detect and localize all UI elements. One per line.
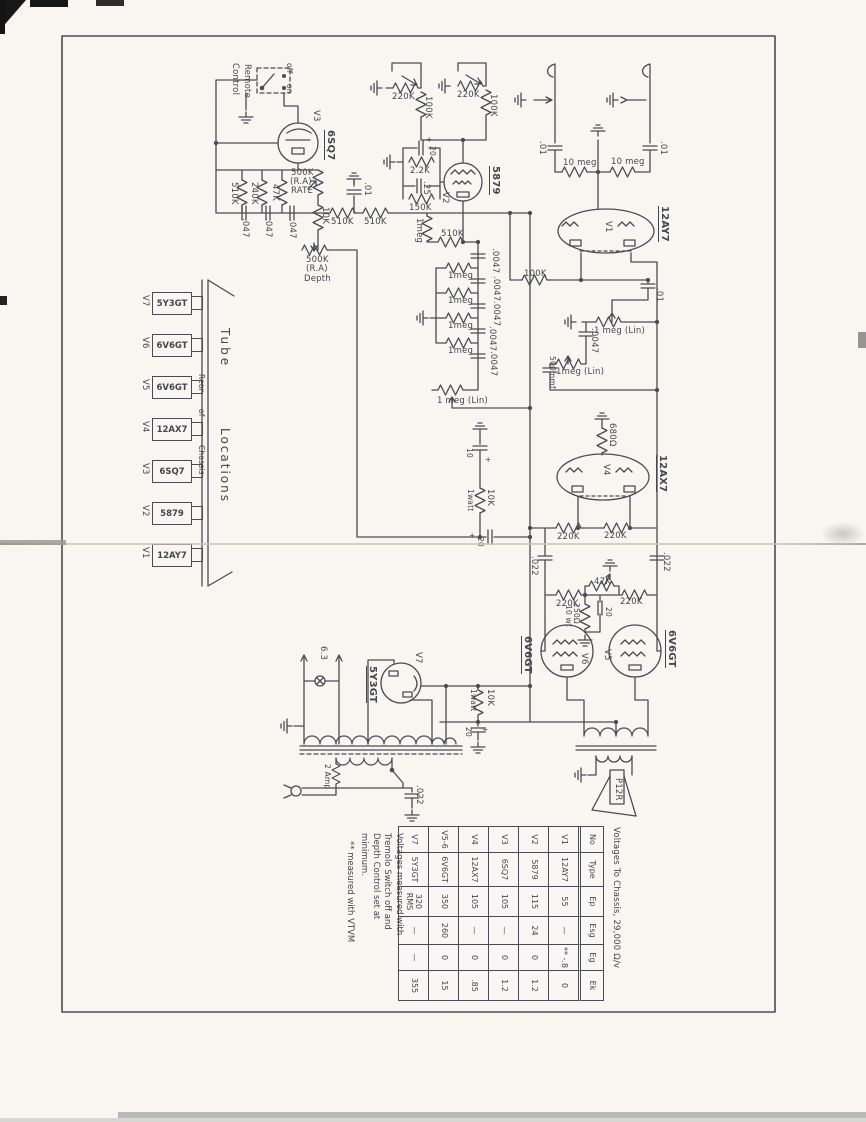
label-filt-plus1: + <box>485 455 491 464</box>
label-v4-type: 12AX7 <box>656 455 668 492</box>
label-in2-100k: 100K <box>488 94 498 117</box>
label-osc-r2: 240K <box>249 182 259 205</box>
vt-cell: V2 <box>518 827 548 853</box>
label-v5: V5 <box>602 649 612 661</box>
label-ps-10k: 10K <box>485 689 495 706</box>
scan-crease-left <box>0 540 66 545</box>
b-plus-filter <box>473 212 532 545</box>
vt-cell: — <box>458 917 488 945</box>
label-v1: V1 <box>603 221 613 233</box>
vt-cell: 350 <box>428 887 458 917</box>
scan-artifact-top-dash1 <box>30 0 68 7</box>
label-osc-c3: .047 <box>287 219 297 239</box>
vt-cell: — <box>548 917 578 945</box>
vt-row-v4: V4 12AX7 105 — 0 .85 <box>458 827 488 1001</box>
label-switch-on: on <box>285 84 294 94</box>
label-lad-r4: 1meg <box>448 346 473 356</box>
chart-no-v6: V6 <box>140 337 150 349</box>
label-lad-r3: 1meg <box>448 321 473 331</box>
label-out-250: 250Ω <box>572 603 581 624</box>
chart-box-v5: 6V6GT <box>152 376 192 399</box>
phase-shift-ladder <box>417 242 532 410</box>
label-trem-c0047: .0047 <box>589 328 599 353</box>
note-line-2: Tremolo Switch off and <box>381 833 393 1033</box>
label-osc-r6: 510K <box>364 217 387 227</box>
label-depth-3: Depth <box>304 274 331 284</box>
vt-cell: 115 <box>518 887 548 917</box>
vt-cell: 0 <box>458 945 488 971</box>
label-v2-510k: 510K <box>441 229 464 239</box>
vt-cell: 55 <box>548 887 578 917</box>
label-fuse-2amp: 2 Amp <box>323 764 332 789</box>
label-v4-680: 680Ω <box>607 423 617 447</box>
voltage-table-title: Voltages To Chassis, 29,000 Ω/v <box>611 827 621 968</box>
scanned-schematic-page: Remote Control off on V3 6SQ7 510K 240K … <box>0 0 866 1122</box>
chart-no-v2: V2 <box>140 505 150 517</box>
label-lad-c1: .0047 <box>490 248 500 273</box>
tube-v2-5879 <box>384 141 482 247</box>
label-v1-100k: 100K <box>524 269 547 279</box>
chart-no-v4: V4 <box>140 421 150 433</box>
note-vtvm-text: measured with VTVM <box>345 852 355 942</box>
vt-cell: 260 <box>428 917 458 945</box>
chart-title-tube: Tube <box>220 328 230 368</box>
vt-cell: 12AY7 <box>548 853 578 887</box>
voltage-notes: Voltages measured with Tremolo Switch of… <box>344 833 405 1033</box>
voltage-table-header-row: No Type Ep Esg Eg Ek <box>578 827 603 1001</box>
vt-row-v56: V5-6 6V6GT 350 260 0 15 <box>428 827 458 1001</box>
label-j3-cap: .01 <box>537 141 547 155</box>
note-line-3: Depth Control set at <box>370 833 382 1033</box>
tremolo-oscillator-v3 <box>215 68 531 537</box>
vt-cell: 105 <box>458 887 488 917</box>
chart-box-v4: 12AX7 <box>152 418 192 441</box>
label-filt-10k: 10K <box>485 489 495 506</box>
chart-box-v6: 6V6GT <box>152 334 192 357</box>
label-rate-3: RATE <box>291 186 313 196</box>
vt-cell: 0 <box>428 945 458 971</box>
label-trem-pot1: 1 meg (Lin) <box>594 326 645 336</box>
vt-cell: 0 <box>488 945 518 971</box>
vt-h-eg: Eg <box>578 945 603 971</box>
label-heater-63: 6.3 <box>318 646 328 660</box>
scan-fold-crease <box>0 543 866 545</box>
label-v4-220k-b: 220K <box>604 531 627 541</box>
chart-no-v5: V5 <box>140 379 150 391</box>
label-v3: V3 <box>311 110 321 122</box>
label-remote-1: Remote <box>242 64 252 98</box>
label-osc-r5: 510K <box>331 217 354 227</box>
vt-row-v2: V2 5879 115 24 0 1.2 <box>518 827 548 1001</box>
label-osc-r1: 510K <box>229 182 239 205</box>
note-line-4: minimum. <box>358 833 370 1033</box>
scan-smudge-right <box>820 522 866 546</box>
vt-cell: 5879 <box>518 853 548 887</box>
label-osc-c2: .047 <box>263 218 273 238</box>
label-v7: V7 <box>413 652 423 664</box>
label-in2-220k: 220K <box>457 90 480 100</box>
label-v6-type: 6V6GT <box>521 636 533 674</box>
label-j4-cap: .01 <box>658 141 668 155</box>
chart-type-v5: 6V6GT <box>156 383 187 393</box>
label-in1-100k: 100K <box>423 96 433 119</box>
label-v4-220k-a: 220K <box>557 532 580 542</box>
label-ps-1watt: 1watt <box>469 689 478 711</box>
label-v2-c20: 20 <box>428 146 437 156</box>
vt-row-v1: V1 12AY7 55 — ** -.8 0 <box>548 827 578 1001</box>
label-lad-pot: 1 meg (Lin) <box>437 396 488 406</box>
voltage-table: No Type Ep Esg Eg Ek V1 12AY7 55 — ** -.… <box>398 826 604 1001</box>
label-v2: V2 <box>440 192 450 204</box>
label-v2-c25: .25 <box>421 181 431 195</box>
label-lad-r1: 1meg <box>448 271 473 281</box>
label-v4: V4 <box>601 464 611 476</box>
label-v2-2k2: 2.2K <box>410 166 430 176</box>
vt-cell: V3 <box>488 827 518 853</box>
vt-cell: V5-6 <box>428 827 458 853</box>
chart-type-v2: 5879 <box>160 509 184 519</box>
label-v1-type: 12AY7 <box>658 206 670 242</box>
chart-no-v1: V1 <box>140 547 150 559</box>
vt-cell: V4 <box>458 827 488 853</box>
label-v2-1meg: 1meg <box>414 218 424 243</box>
label-v5-type: 6V6GT <box>665 630 677 668</box>
label-v2-150k: 150K <box>409 203 432 213</box>
vt-cell: 6SQ7 <box>488 853 518 887</box>
vt-cell: 0 <box>518 945 548 971</box>
label-filt-c10: 10 <box>465 448 474 458</box>
label-lad-c5: .0047 <box>488 351 498 376</box>
label-out-c20: 20 <box>604 607 613 617</box>
label-ps-c022: .022 <box>414 785 424 805</box>
chart-type-v7: 5Y3GT <box>157 299 188 309</box>
chart-box-v7: 5Y3GT <box>152 292 192 315</box>
label-remote-2: Control <box>230 63 240 95</box>
chart-box-v2: 5879 <box>152 502 192 525</box>
label-osc-r4: 10K <box>320 207 330 224</box>
chart-type-v3: 6SQ7 <box>159 467 184 477</box>
note-vtvm-mark: ** <box>345 841 355 850</box>
chart-type-v1: 12AY7 <box>157 551 187 561</box>
vt-cell: V1 <box>548 827 578 853</box>
scan-artifact-right-mark <box>858 332 866 348</box>
label-10meg-a: 10 meg <box>563 158 597 168</box>
label-trem-c01: .01 <box>654 288 664 302</box>
label-lad-c4: .0047 <box>487 326 497 351</box>
label-lad-c3: .0047 <box>491 301 501 326</box>
chart-title-locations: Locations <box>220 428 230 503</box>
label-trem-500mmf: 500mmf <box>548 356 557 389</box>
label-osc-c1: .047 <box>240 218 250 238</box>
label-10meg-b: 10 meg <box>611 157 645 167</box>
vt-row-v3: V3 6SQ7 105 — 0 1.2 <box>488 827 518 1001</box>
vt-cell: ** -.8 <box>548 945 578 971</box>
vt-cell: 6V6GT <box>428 853 458 887</box>
label-filt-1watt: 1watt <box>466 489 475 511</box>
output-stage-6v6gt <box>440 625 661 816</box>
tube-v1-12ay7 <box>509 64 658 285</box>
label-depth-2: (R.A) <box>306 264 328 274</box>
tube-v4-12ax7 <box>529 413 665 651</box>
chart-box-v1: 12AY7 <box>152 544 192 567</box>
chart-box-v3: 6SQ7 <box>152 460 192 483</box>
label-v2-type: 5879 <box>489 166 501 195</box>
chart-no-v3: V3 <box>140 463 150 475</box>
vt-cell: 15 <box>428 971 458 1001</box>
chart-type-v6: 6V6GT <box>156 341 187 351</box>
vt-cell: 105 <box>488 887 518 917</box>
label-filt-plus2: + <box>469 531 475 540</box>
vt-cell: 24 <box>518 917 548 945</box>
vt-h-no: No <box>578 827 603 853</box>
vt-cell: 0 <box>548 971 578 1001</box>
vt-h-type: Type <box>578 853 603 887</box>
label-v3-type: 6SQ7 <box>324 130 336 160</box>
label-osc-r3: 47K <box>270 184 280 201</box>
vt-h-esg: Esg <box>578 917 603 945</box>
label-ps-c20: 20 <box>464 727 473 737</box>
vt-h-ek: Ek <box>578 971 603 1001</box>
label-filt-c20: 20 <box>476 537 485 547</box>
label-v6: V6 <box>579 653 589 665</box>
note-line-1: Voltages measured with <box>393 833 405 1033</box>
chart-of: of <box>197 409 206 417</box>
vt-cell: — <box>488 917 518 945</box>
label-speaker-p12r: P12R <box>613 778 623 801</box>
label-v7-type: 5Y3GT <box>366 666 378 703</box>
scan-artifact-top-dash2 <box>96 0 124 6</box>
chart-no-v7: V7 <box>140 295 150 307</box>
label-in1-220k: 220K <box>392 92 415 102</box>
label-out-47k: 47K <box>594 577 611 587</box>
label-ps-plus: + <box>482 725 488 734</box>
vt-cell: 1.2 <box>488 971 518 1001</box>
label-v2-plus: + <box>426 135 432 144</box>
vt-cell: 1.2 <box>518 971 548 1001</box>
note-vtvm: ** measured with VTVM <box>344 833 356 1033</box>
vt-h-ep: Ep <box>578 887 603 917</box>
chart-type-v4: 12AX7 <box>157 425 188 435</box>
scan-artifact-left-mark <box>0 296 7 305</box>
label-osc-c4: .01 <box>362 182 372 196</box>
label-trem-pot2: 1meg (Lin) <box>556 367 604 377</box>
label-switch-off: off <box>285 63 294 73</box>
label-lad-r2: 1meg <box>448 296 473 306</box>
vt-cell: .85 <box>458 971 488 1001</box>
vt-cell: 12AX7 <box>458 853 488 887</box>
label-c022-b: .022 <box>661 552 671 572</box>
scan-artifact-bottom-edge <box>0 1118 866 1122</box>
label-out-220k-b: 220K <box>620 597 643 607</box>
scan-artifact-left-edge <box>0 0 5 34</box>
label-c022-a: .022 <box>529 556 539 576</box>
label-lad-c2: .0047 <box>491 276 501 301</box>
